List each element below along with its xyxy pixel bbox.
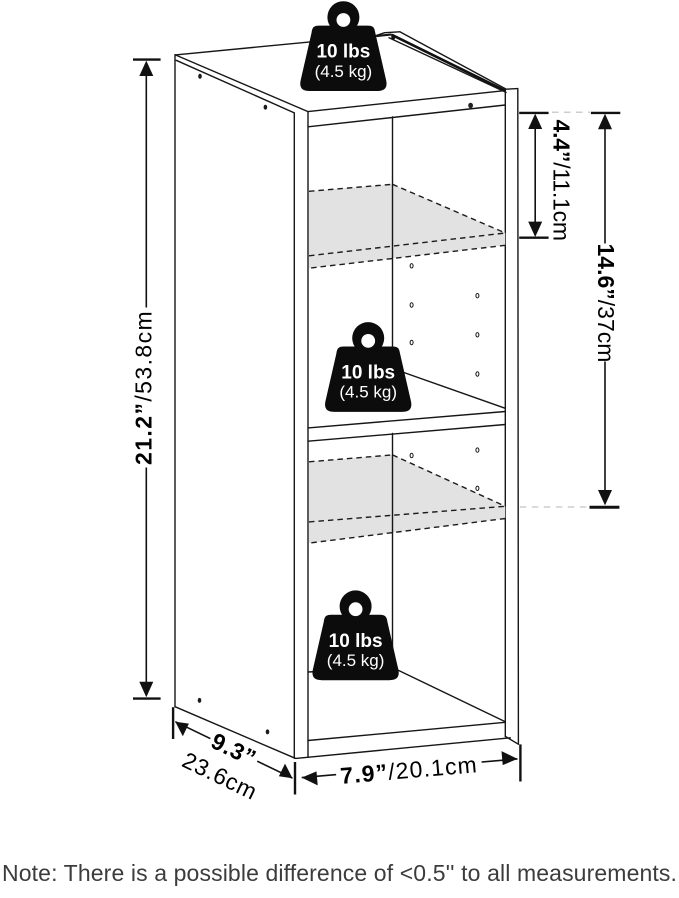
- svg-text:Note: There is a possible diff: Note: There is a possible difference of …: [2, 860, 677, 886]
- svg-text:21.2”/53.8cm: 21.2”/53.8cm: [131, 310, 157, 465]
- svg-text:4.4”/11.1cm: 4.4”/11.1cm: [549, 120, 575, 241]
- svg-text:14.6”/37cm: 14.6”/37cm: [593, 244, 619, 363]
